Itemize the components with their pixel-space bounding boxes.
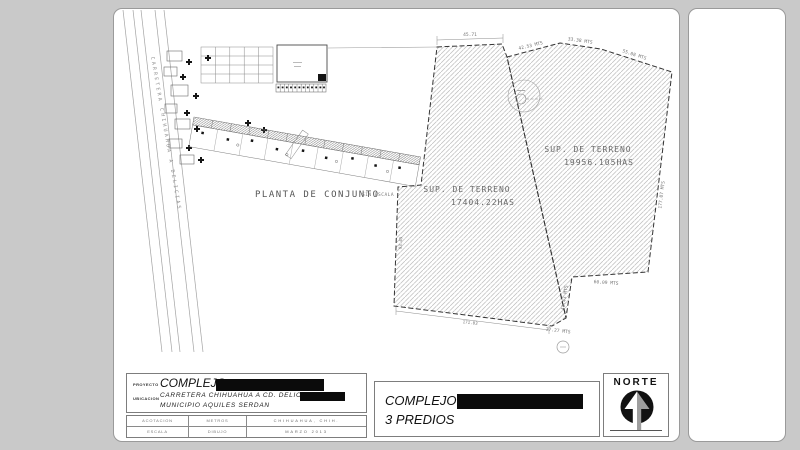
title-block-meta: ACOTACION METROS CHIHUAHUA, CHIH. ESCALA… (126, 415, 367, 438)
sheet-title-line1: COMPLEJO (385, 393, 457, 408)
plan-title: PLANTA DE CONJUNTO (255, 190, 380, 200)
ubicacion-label: UBICACION (133, 396, 159, 401)
tree-marks (180, 55, 267, 163)
north-arrow-icon (617, 388, 657, 432)
dim-north-seg2: 33.38 MTS (567, 36, 593, 45)
dim-south-notch: 27.27 MTS (545, 327, 571, 336)
meta-escala-label: ESCALA (127, 427, 189, 438)
ubicacion-line1: CARRETERA CHIHUAHUA A CD. DELICIAS (160, 392, 314, 399)
meta-date: MARZO 2013 (247, 427, 366, 438)
dim-south-left: 171.03 (462, 319, 478, 326)
redaction-location (300, 392, 345, 401)
road-label: CARRETERA CHIHUAHUA A DELICIAS (149, 56, 182, 211)
parking-grid (201, 47, 273, 83)
dim-west-edge: 93.45 (398, 236, 403, 249)
north-label: NORTE (604, 377, 668, 388)
meta-acotacion-label: ACOTACION (127, 416, 189, 427)
parcel-left-area: 17404.22HAS (451, 198, 515, 207)
parcel-right-label: SUP. DE TERRENO (544, 145, 631, 154)
plan-scale-note: SIN ESCALA (362, 192, 394, 198)
dim-south-right: 60.09 MTS (593, 279, 618, 287)
parcel-left-label: SUP. DE TERRENO (423, 185, 510, 194)
redaction-project-name (216, 379, 324, 391)
title-block-project: PROYECTO COMPLEJO UBICACION CARRETERA CH… (126, 373, 367, 413)
ubicacion-line2: MUNICIPIO AQUILES SERDAN (160, 402, 270, 409)
sheet-title-line2: 3 PREDIOS (385, 412, 454, 427)
north-caption-smudge (610, 430, 662, 432)
meta-dibujo-label: DIBUJO (189, 427, 247, 438)
lot-band (189, 111, 422, 186)
dim-east-edge: 177.07 MTS (657, 181, 666, 209)
north-box: NORTE (603, 373, 669, 437)
building-complex (164, 45, 437, 186)
parking-stalls (276, 84, 326, 92)
proyecto-label: PROYECTO (133, 382, 159, 387)
terrain-boundary-line (328, 47, 437, 48)
meta-city: CHIHUAHUA, CHIH. (247, 416, 366, 427)
title-block-sheet-title: COMPLEJO 3 PREDIOS (374, 381, 600, 437)
parcel-right-area: 19956.105HAS (564, 158, 634, 167)
meta-acotacion-value: METROS (189, 416, 247, 427)
redaction-sheet-title (457, 394, 583, 409)
dim-top-width: 45.71 (463, 32, 477, 38)
survey-marker-circle (557, 341, 569, 353)
building-dark-corner (318, 74, 326, 81)
main-building (277, 45, 327, 82)
